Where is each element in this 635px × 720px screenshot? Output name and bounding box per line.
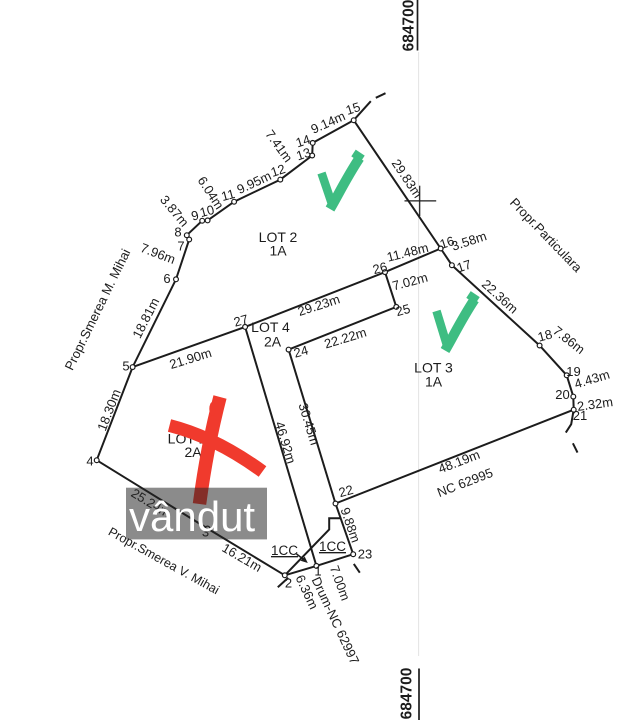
- svg-text:1CC: 1CC: [271, 543, 298, 558]
- svg-text:4: 4: [86, 454, 93, 469]
- svg-text:23: 23: [358, 547, 372, 562]
- svg-text:vândut: vândut: [129, 493, 255, 540]
- svg-text:1CC: 1CC: [319, 539, 346, 554]
- svg-text:684700: 684700: [401, 0, 418, 51]
- svg-text:7: 7: [177, 239, 184, 254]
- svg-text:684700: 684700: [399, 668, 416, 720]
- svg-text:5: 5: [122, 359, 129, 374]
- svg-text:2A: 2A: [184, 444, 202, 460]
- svg-text:20: 20: [555, 387, 569, 402]
- svg-text:1A: 1A: [425, 374, 443, 390]
- svg-text:6: 6: [163, 271, 170, 286]
- svg-text:2: 2: [285, 576, 292, 591]
- svg-text:2A: 2A: [264, 334, 282, 350]
- svg-text:1A: 1A: [269, 243, 287, 259]
